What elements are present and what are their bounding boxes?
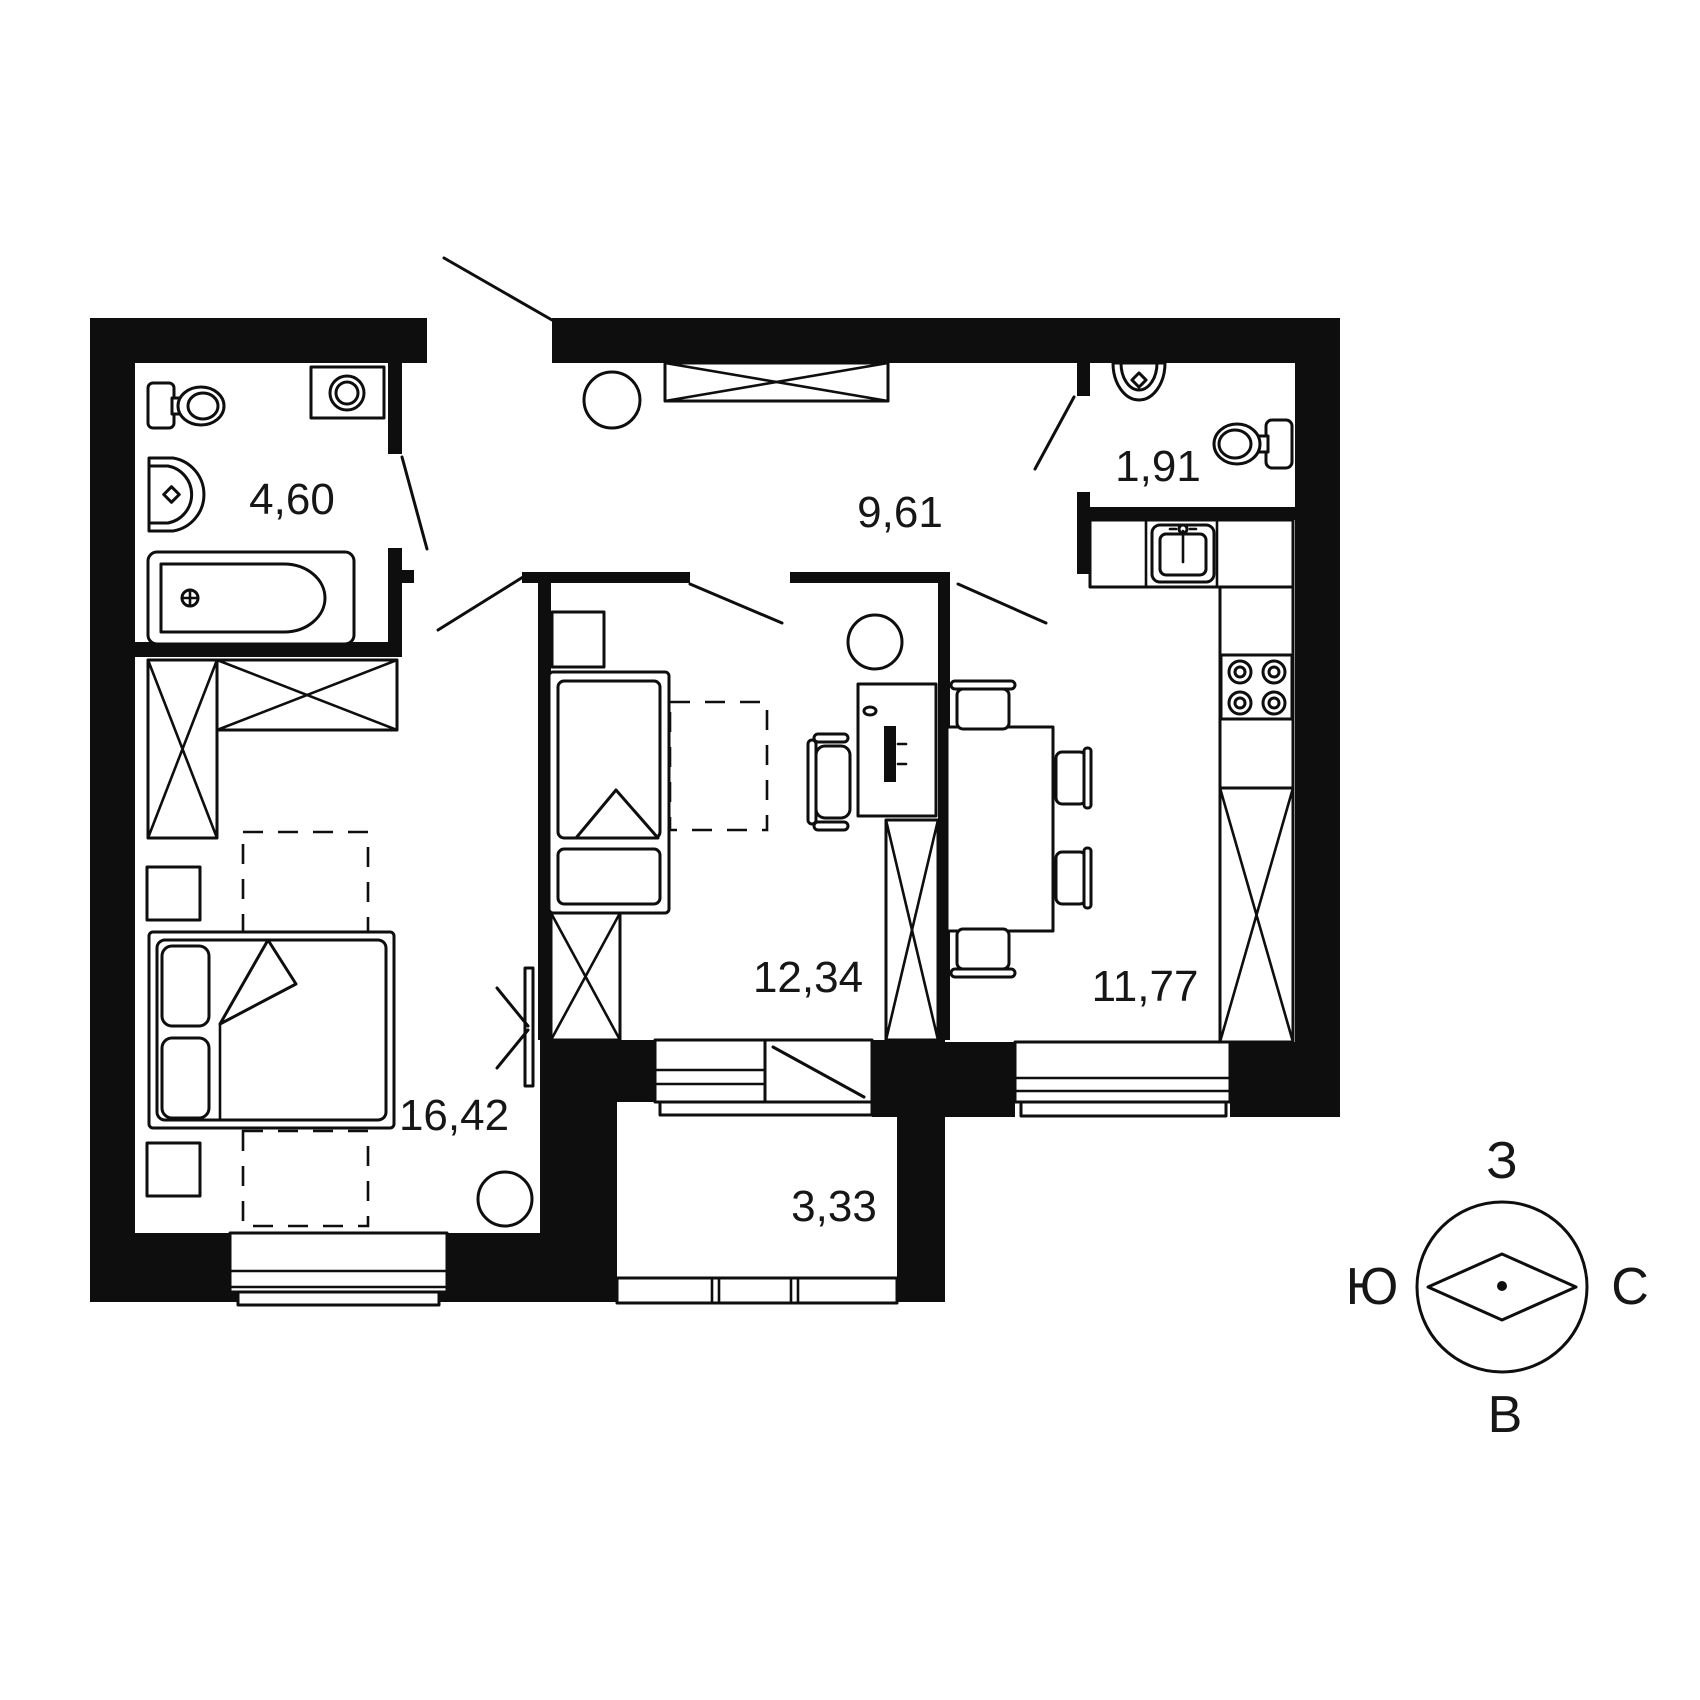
dining-chair-right-2 <box>1056 848 1091 908</box>
kidsroom-wardrobe-left <box>551 913 620 1040</box>
single-bed <box>549 672 669 913</box>
door-swing-stroke <box>497 988 528 1026</box>
entrance-door-swing <box>444 258 552 320</box>
wall-bathroom-right-upper <box>388 362 402 454</box>
kidsroom-dashed-zone <box>670 702 767 830</box>
dining-chair-top <box>951 681 1015 729</box>
bathroom-toilet <box>148 383 224 428</box>
wall-wc-bottom <box>1077 507 1295 520</box>
balcony-glazing <box>617 1278 897 1303</box>
chair-seat <box>816 746 850 818</box>
washing-machine <box>311 367 384 418</box>
monitor <box>884 726 896 782</box>
bathroom-sink <box>149 458 204 531</box>
bedroom-south-window <box>230 1233 447 1305</box>
bed-foot-section <box>558 849 660 904</box>
wall-kitchen-bottom-right <box>1230 1042 1340 1117</box>
washing-machine-drum-inner <box>336 382 358 404</box>
toilet-tank <box>148 383 174 428</box>
wall-left <box>90 318 135 1302</box>
chair-back <box>1084 748 1091 808</box>
room-label-bedroom: 16,42 <box>399 1091 509 1140</box>
compass-label-top: З <box>1486 1132 1517 1190</box>
burner-inner <box>1235 667 1245 677</box>
bathroom-door-swing <box>402 457 427 549</box>
chair-back <box>951 969 1015 977</box>
wall-right <box>1295 318 1340 1117</box>
chair-arm <box>814 734 848 742</box>
room-label-hallway: 9,61 <box>857 488 943 537</box>
chair-back <box>1084 848 1091 908</box>
chair-seat <box>957 929 1009 969</box>
floor-plan-svg: 4,60 9,61 1,91 16,42 12,34 11,77 3,33 З … <box>0 0 1700 1700</box>
window-frame <box>617 1278 897 1303</box>
burner-inner <box>1269 698 1279 708</box>
compass-label-left: Ю <box>1346 1258 1399 1316</box>
compass-label-right: С <box>1611 1258 1649 1316</box>
kitchen-sink <box>1152 525 1214 582</box>
burner-inner <box>1269 667 1279 677</box>
door-swing-stroke <box>497 1030 528 1068</box>
balcony-unit-sill <box>660 1102 872 1115</box>
room-label-bathroom: 4,60 <box>249 475 335 524</box>
bedroom-dashed-zone-upper <box>243 832 368 933</box>
pillow <box>162 1038 209 1118</box>
pillow <box>162 946 209 1026</box>
toilet-bowl-inner <box>188 393 218 419</box>
wc-sink <box>1113 363 1165 400</box>
bedroom-dashed-zone-lower <box>243 1131 368 1226</box>
window-frame <box>230 1233 447 1292</box>
wall-balcony-unit-right <box>872 1040 945 1102</box>
bathtub <box>148 552 354 644</box>
hallway-ceiling-light <box>584 372 640 428</box>
kidsroom-wardrobe-right <box>886 820 938 1040</box>
hallway-wardrobe <box>665 363 888 401</box>
window-frame <box>1015 1042 1230 1102</box>
desk-mouse <box>864 707 876 715</box>
compass-center-dot <box>1497 1281 1507 1291</box>
room-label-balcony: 3,33 <box>791 1182 877 1231</box>
burner-inner <box>1235 698 1245 708</box>
room-label-kidsroom: 12,34 <box>753 953 863 1002</box>
floor-plan-page: 4,60 9,61 1,91 16,42 12,34 11,77 3,33 З … <box>0 0 1700 1700</box>
desk-chair <box>808 734 850 830</box>
wall-top-right <box>552 318 1340 363</box>
wall-top-left <box>90 318 427 363</box>
wall-bathroom-right-lower <box>388 548 402 657</box>
wall-wc-left-lower <box>1077 492 1090 574</box>
compass: З Ю С В <box>1346 1132 1649 1444</box>
dining-table <box>947 727 1053 931</box>
dining-chair-right-1 <box>1056 748 1091 808</box>
chair-arm <box>814 822 848 830</box>
dining-chair-bottom <box>951 929 1015 977</box>
compass-label-bottom: В <box>1488 1386 1523 1444</box>
bedroom-door-swing <box>438 577 523 630</box>
chair-seat <box>1056 752 1086 804</box>
bedroom-nightstand-upper <box>147 867 200 920</box>
room-label-wc: 1,91 <box>1115 442 1201 491</box>
bedroom-open-door <box>497 968 533 1086</box>
desk-top <box>858 684 936 816</box>
balcony-door-unit <box>655 1040 872 1115</box>
kitchen-door-swing <box>958 584 1046 623</box>
wc-toilet <box>1214 420 1292 468</box>
toilet-tank <box>1266 420 1292 468</box>
kidsroom-door-swing <box>690 584 782 623</box>
wc-door-swing <box>1035 397 1074 469</box>
kidsroom-ceiling-light <box>848 615 902 669</box>
bedroom-wardrobe-l <box>148 660 397 838</box>
kidsroom-nightstand <box>552 612 604 667</box>
fridge-cabinet <box>1220 788 1293 1042</box>
room-label-kitchen: 11,77 <box>1092 962 1199 1011</box>
kitchen-south-window <box>1015 1042 1230 1116</box>
bedroom-ceiling-light <box>478 1172 532 1226</box>
chair-seat <box>957 689 1009 729</box>
bedroom-nightstand-lower <box>147 1143 200 1196</box>
desk <box>858 684 936 816</box>
wall-bathroom-stub <box>402 570 414 583</box>
door-swings <box>402 258 1074 630</box>
chair-seat <box>1056 852 1086 904</box>
wall-balcony-left <box>540 1040 617 1302</box>
wall-wc-left-upper <box>1077 362 1090 396</box>
window-sill <box>238 1292 439 1305</box>
wall-balcony-unit-left <box>617 1040 655 1102</box>
window-sill <box>1021 1102 1226 1116</box>
table-top <box>947 727 1053 931</box>
stove <box>1221 655 1292 719</box>
wall-kidsroom-top-right <box>790 572 950 583</box>
toilet-bowl-inner <box>1219 430 1251 458</box>
double-bed <box>149 932 394 1128</box>
